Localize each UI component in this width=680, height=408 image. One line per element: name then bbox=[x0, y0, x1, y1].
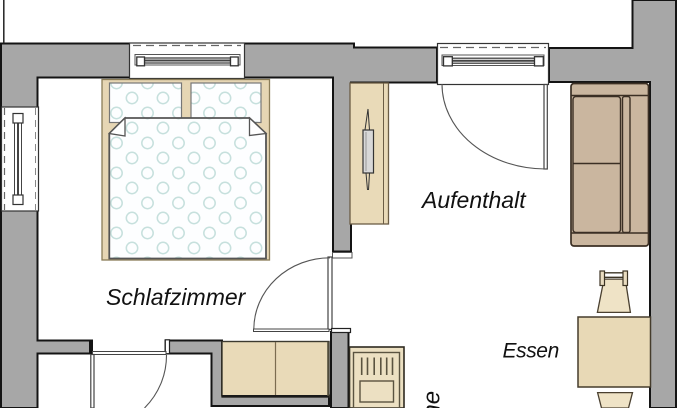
svg-text:Aufenthalt: Aufenthalt bbox=[420, 187, 527, 213]
svg-text:Küche: Küche bbox=[419, 391, 446, 408]
svg-text:Schlafzimmer: Schlafzimmer bbox=[106, 284, 247, 310]
svg-text:Essen: Essen bbox=[503, 340, 559, 363]
